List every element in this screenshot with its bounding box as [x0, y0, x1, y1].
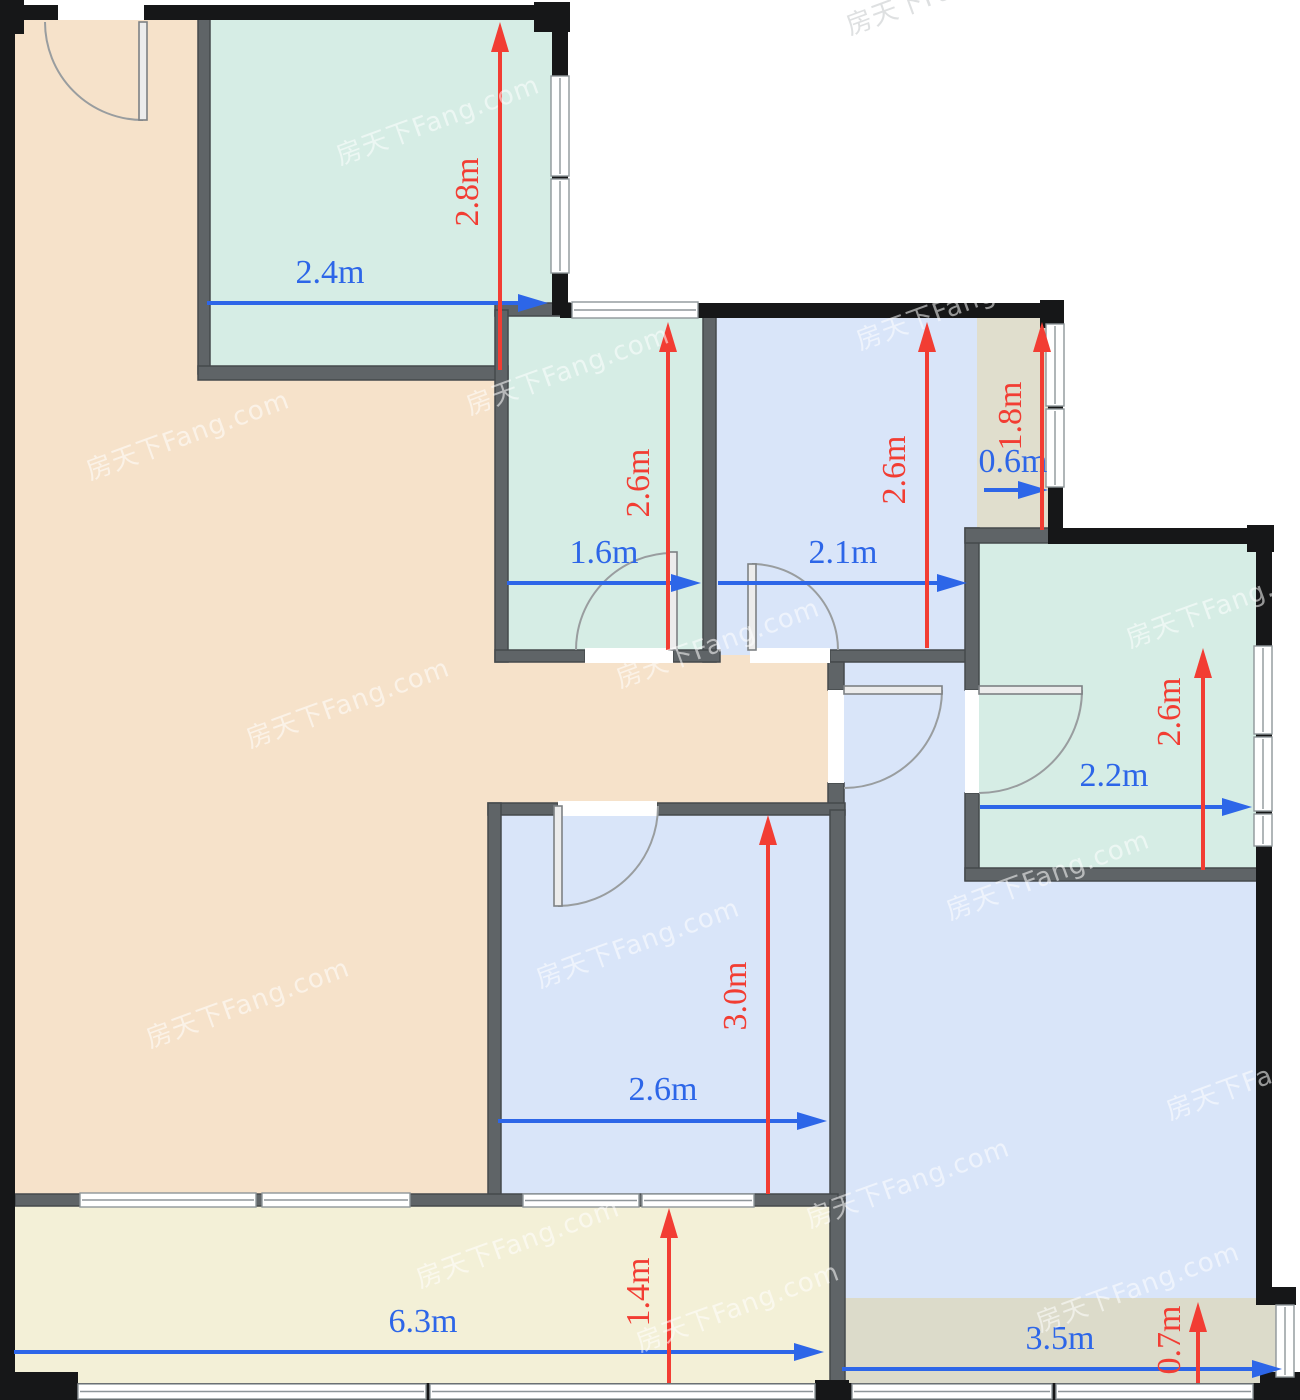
- interior-wall: [830, 1200, 845, 1390]
- dimension-label: 2.6m: [1151, 678, 1188, 747]
- interior-wall: [965, 528, 1055, 543]
- exterior-wall: [0, 1372, 78, 1400]
- interior-wall: [830, 650, 977, 662]
- dimension-label: 2.8m: [449, 158, 486, 227]
- interior-wall: [495, 650, 585, 662]
- interior-wall: [703, 315, 716, 662]
- exterior-wall: [1048, 528, 1272, 544]
- dimension-label: 2.4m: [296, 254, 365, 291]
- dimension-label: 1.6m: [570, 534, 639, 571]
- door-opening: [828, 690, 844, 783]
- dimension-label: 2.6m: [876, 436, 913, 505]
- study-door-leaf: [669, 552, 677, 650]
- room-living-room-mid: [200, 370, 495, 1196]
- exterior-wall: [0, 5, 15, 1400]
- interior-wall: [488, 803, 501, 1203]
- dimension-label: 2.1m: [809, 534, 878, 571]
- dimension-label: 2.2m: [1080, 757, 1149, 794]
- room-bedroom-center: [495, 808, 835, 1198]
- dimension-label: 1.4m: [620, 1258, 657, 1327]
- interior-wall: [657, 803, 845, 815]
- dimension-label: 2.6m: [620, 449, 657, 518]
- interior-wall: [198, 366, 508, 380]
- dimension-label: 3.0m: [717, 962, 754, 1031]
- dimension-label: 1.8m: [992, 382, 1029, 451]
- dimension-label: 6.3m: [389, 1303, 458, 1340]
- exterior-wall: [1256, 1287, 1296, 1305]
- interior-wall: [198, 18, 210, 374]
- bedroom-right-door-leaf: [979, 686, 1082, 694]
- floor-plan: 2.4m1.6m2.1m0.6m2.2m2.6m6.3m3.5m2.8m2.6m…: [0, 0, 1300, 1400]
- door-opening: [558, 801, 657, 816]
- dimension-label: 2.6m: [629, 1071, 698, 1108]
- door-opening: [750, 648, 830, 663]
- bedroom-center-door-leaf: [554, 806, 562, 906]
- interior-wall: [965, 793, 979, 880]
- hallway-door-leaf: [844, 686, 942, 694]
- entry-door-leaf: [139, 22, 147, 120]
- room-bedroom-right: [975, 540, 1257, 872]
- dimension-label: 0.7m: [1151, 1306, 1188, 1375]
- interior-wall: [828, 662, 844, 690]
- door-opening: [58, 2, 144, 20]
- interior-wall: [830, 810, 845, 1200]
- exterior-wall: [815, 1380, 849, 1400]
- door-opening: [965, 690, 979, 793]
- floor-plan-svg: 2.4m1.6m2.1m0.6m2.2m2.6m6.3m3.5m2.8m2.6m…: [0, 0, 1300, 1400]
- interior-wall: [965, 528, 979, 690]
